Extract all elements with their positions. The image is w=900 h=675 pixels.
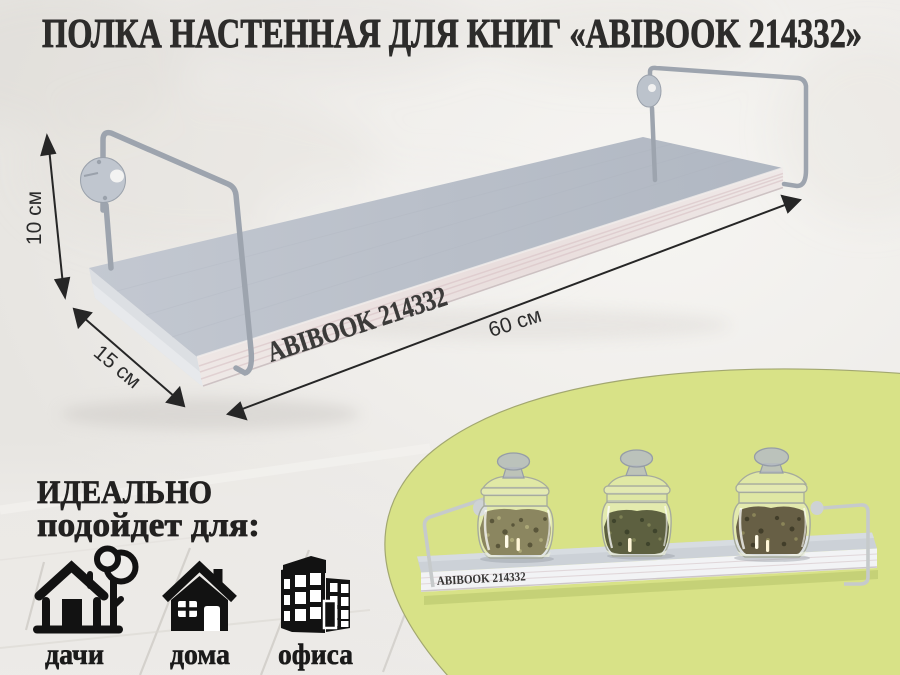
svg-text:ПОЛКА НАСТЕННАЯ ДЛЯ КНИГ «ABIB: ПОЛКА НАСТЕННАЯ ДЛЯ КНИГ «ABIBOOK 214332… <box>42 10 862 56</box>
svg-text:подойдет для:: подойдет для: <box>37 507 260 544</box>
svg-text:дачи: дачи <box>45 638 104 671</box>
svg-text:офиса: офиса <box>278 638 353 671</box>
svg-text:ИДЕАЛЬНО: ИДЕАЛЬНО <box>37 475 212 511</box>
svg-text:10 см: 10 см <box>23 191 46 245</box>
svg-text:дома: дома <box>170 638 230 671</box>
